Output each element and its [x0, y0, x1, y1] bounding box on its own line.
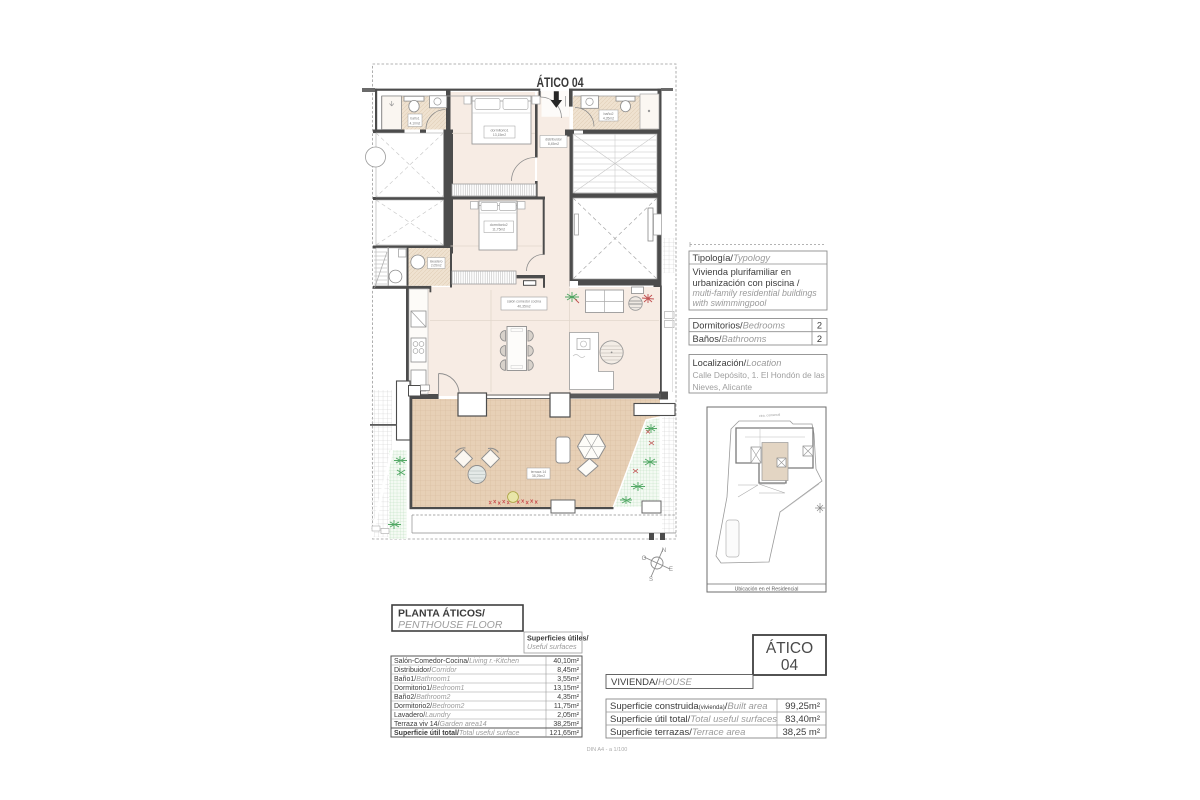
svg-text:8,45m²: 8,45m²: [557, 667, 579, 674]
svg-text:Lavadero/Laundry: Lavadero/Laundry: [394, 712, 451, 719]
svg-text:13,15m2: 13,15m2: [493, 133, 506, 137]
svg-text:11,75m²: 11,75m²: [554, 703, 580, 710]
svg-text:Localización/Location: Localización/Location: [693, 358, 782, 368]
svg-text:with swimmingpool: with swimmingpool: [693, 298, 768, 308]
svg-text:11,75m2: 11,75m2: [492, 228, 505, 232]
svg-text:Terraza viv 14/Garden area14: Terraza viv 14/Garden area14: [394, 721, 487, 728]
svg-text:2,05m2: 2,05m2: [431, 264, 442, 268]
svg-text:Ubicación en el Residencial: Ubicación en el Residencial: [735, 587, 799, 593]
svg-text:distribuidor: distribuidor: [545, 138, 562, 142]
svg-text:Superficie útil total/Total us: Superficie útil total/Total useful surfa…: [394, 730, 520, 737]
svg-text:13,15m²: 13,15m²: [553, 685, 579, 692]
svg-text:E: E: [669, 567, 673, 573]
svg-text:ÁTICO 04: ÁTICO 04: [537, 75, 584, 90]
svg-text:Salón-Comedor-Cocina/Living r.: Salón-Comedor-Cocina/Living r.-Kitchen: [394, 658, 519, 665]
svg-text:99,25m²: 99,25m²: [785, 701, 820, 712]
svg-text:dormitorio1: dormitorio1: [491, 129, 509, 133]
svg-text:121,65m²: 121,65m²: [549, 730, 579, 737]
svg-text:Baños/Bathrooms: Baños/Bathrooms: [693, 334, 767, 344]
svg-text:38,25 m²: 38,25 m²: [783, 727, 821, 738]
svg-text:ÁTICO: ÁTICO: [766, 640, 813, 657]
svg-text:Baño1/Bathroom1: Baño1/Bathroom1: [394, 676, 451, 683]
svg-text:salón comedor cocina: salón comedor cocina: [507, 300, 541, 304]
svg-text:2,05m²: 2,05m²: [557, 712, 579, 719]
svg-text:Vivienda plurifamiliar en: Vivienda plurifamiliar en: [693, 267, 792, 277]
svg-text:urbanización con piscina /: urbanización con piscina /: [693, 278, 800, 288]
svg-text:N: N: [662, 548, 666, 554]
svg-text:Baño2/Bathroom2: Baño2/Bathroom2: [394, 694, 451, 701]
svg-text:Dormitorio1/Bedroom1: Dormitorio1/Bedroom1: [394, 685, 465, 692]
svg-text:Tipología/Typology: Tipología/Typology: [693, 253, 772, 263]
svg-text:4,35m²: 4,35m²: [557, 694, 579, 701]
svg-text:Superficie construida(vivienda: Superficie construida(vivienda)/Built ar…: [610, 701, 768, 712]
svg-text:04: 04: [781, 657, 799, 674]
svg-text:DIN A4 - a 1/100: DIN A4 - a 1/100: [587, 747, 628, 753]
svg-text:2: 2: [817, 334, 822, 344]
svg-text:4,10m2: 4,10m2: [410, 122, 421, 126]
svg-text:Nieves, Alicante: Nieves, Alicante: [693, 382, 753, 392]
svg-text:Distribuidor/Corridor: Distribuidor/Corridor: [394, 667, 457, 674]
svg-text:4,35m2: 4,35m2: [603, 117, 614, 121]
svg-text:8,45m2: 8,45m2: [548, 142, 559, 146]
svg-text:multi-family residential build: multi-family residential buildings: [693, 288, 818, 298]
svg-text:Useful surfaces: Useful surfaces: [527, 642, 577, 651]
svg-text:baño2: baño2: [604, 112, 614, 116]
svg-text:baño1: baño1: [410, 117, 419, 121]
svg-text:PLANTA ÁTICOS/: PLANTA ÁTICOS/: [398, 607, 485, 620]
svg-text:Superficie terrazas/Terrace ar: Superficie terrazas/Terrace area: [610, 727, 745, 738]
svg-text:dormitorio2: dormitorio2: [490, 223, 508, 227]
svg-text:38,25m2: 38,25m2: [532, 474, 545, 478]
svg-text:40,35m2: 40,35m2: [517, 304, 530, 308]
svg-text:Dormitorios/Bedrooms: Dormitorios/Bedrooms: [693, 321, 786, 331]
svg-text:Dormitorio2/Bedroom2: Dormitorio2/Bedroom2: [394, 703, 465, 710]
svg-text:O: O: [642, 556, 647, 562]
svg-text:83,40m²: 83,40m²: [785, 714, 820, 725]
svg-text:S: S: [649, 577, 653, 583]
svg-text:40,10m²: 40,10m²: [553, 658, 579, 665]
svg-text:PENTHOUSE FLOOR: PENTHOUSE FLOOR: [398, 619, 503, 631]
svg-text:VIVIENDA/HOUSE: VIVIENDA/HOUSE: [611, 677, 692, 688]
svg-text:38,25m²: 38,25m²: [553, 721, 579, 728]
svg-text:2: 2: [817, 321, 822, 331]
svg-text:Superficie útil total/Total us: Superficie útil total/Total useful surfa…: [610, 714, 777, 725]
svg-text:3,55m²: 3,55m²: [557, 676, 579, 683]
svg-text:Calle Depósito, 1. El Hondón d: Calle Depósito, 1. El Hondón de las: [693, 370, 825, 380]
